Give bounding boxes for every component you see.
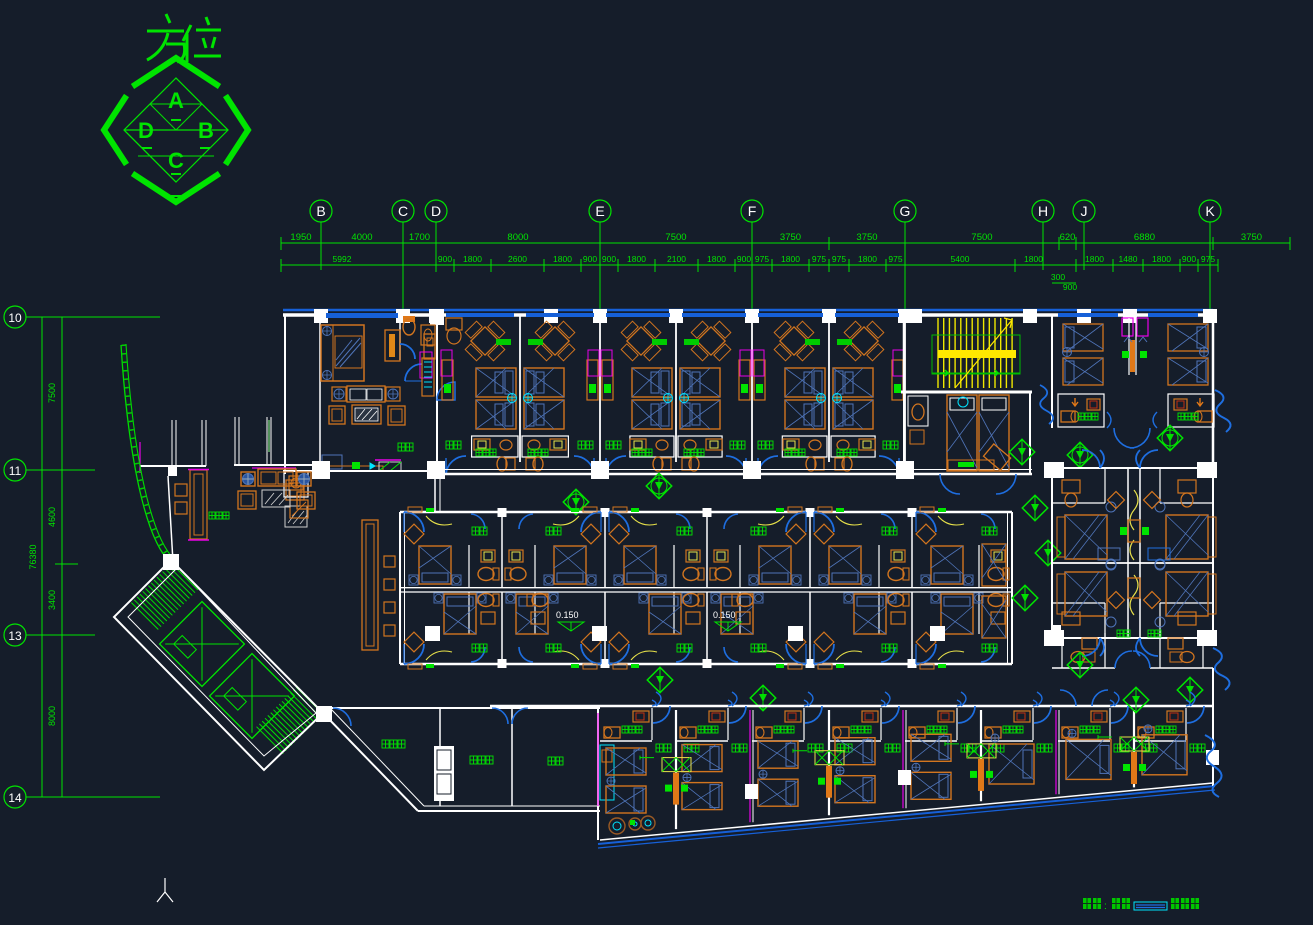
svg-text:975: 975	[812, 254, 826, 264]
svg-text:2100: 2100	[667, 254, 686, 264]
svg-text:900: 900	[602, 254, 616, 264]
svg-text:7500: 7500	[971, 232, 992, 243]
svg-text:1800: 1800	[858, 254, 877, 264]
svg-text:3400: 3400	[47, 590, 57, 610]
svg-text:C: C	[168, 148, 184, 173]
svg-text:2600: 2600	[508, 254, 527, 264]
svg-text:1800: 1800	[781, 254, 800, 264]
svg-text:4000: 4000	[351, 232, 372, 243]
svg-text:975: 975	[832, 254, 846, 264]
svg-text:6880: 6880	[1134, 232, 1155, 243]
svg-text:76380: 76380	[28, 544, 38, 569]
svg-text:975: 975	[1201, 254, 1215, 264]
svg-text:7500: 7500	[665, 232, 686, 243]
svg-text:1700: 1700	[409, 232, 430, 243]
svg-text:1800: 1800	[1085, 254, 1104, 264]
svg-text:1800: 1800	[627, 254, 646, 264]
svg-text:620: 620	[1060, 232, 1076, 243]
svg-text:B: B	[316, 203, 325, 219]
svg-text:900: 900	[583, 254, 597, 264]
svg-text:900: 900	[1063, 282, 1077, 292]
svg-text:1950: 1950	[290, 232, 311, 243]
svg-text:4600: 4600	[47, 507, 57, 527]
svg-text:1800: 1800	[1024, 254, 1043, 264]
svg-text:14: 14	[8, 791, 22, 805]
svg-text:E: E	[595, 203, 604, 219]
svg-text:F: F	[748, 203, 757, 219]
svg-text:5992: 5992	[333, 254, 352, 264]
svg-text:D: D	[431, 203, 441, 219]
svg-text:A: A	[168, 88, 184, 113]
svg-text:3750: 3750	[780, 232, 801, 243]
svg-text:975: 975	[755, 254, 769, 264]
svg-text:7500: 7500	[47, 383, 57, 403]
svg-text:C: C	[398, 203, 408, 219]
svg-text:300: 300	[1051, 272, 1065, 282]
svg-text:3750: 3750	[1241, 232, 1262, 243]
svg-text:975: 975	[888, 254, 902, 264]
svg-text:1800: 1800	[707, 254, 726, 264]
svg-text:G: G	[900, 203, 911, 219]
svg-text:0.150: 0.150	[556, 610, 579, 620]
svg-text:13: 13	[8, 629, 22, 643]
svg-text:1800: 1800	[553, 254, 572, 264]
svg-text:10: 10	[8, 311, 22, 325]
svg-text:J: J	[1081, 203, 1088, 219]
svg-text:11: 11	[9, 464, 22, 478]
svg-text::: :	[1104, 901, 1107, 912]
svg-text:1800: 1800	[1152, 254, 1171, 264]
svg-text:K: K	[1205, 203, 1215, 219]
svg-text:3750: 3750	[856, 232, 877, 243]
svg-text:1480: 1480	[1119, 254, 1138, 264]
svg-text:8000: 8000	[507, 232, 528, 243]
svg-text:H: H	[1038, 203, 1048, 219]
svg-text:D: D	[138, 118, 154, 143]
svg-text:5400: 5400	[951, 254, 970, 264]
svg-text:900: 900	[1182, 254, 1196, 264]
svg-text:900: 900	[737, 254, 751, 264]
svg-text:8000: 8000	[47, 706, 57, 726]
svg-text:B: B	[198, 118, 214, 143]
svg-text:900: 900	[438, 254, 452, 264]
svg-text:1800: 1800	[463, 254, 482, 264]
svg-text:0.150: 0.150	[713, 610, 736, 620]
